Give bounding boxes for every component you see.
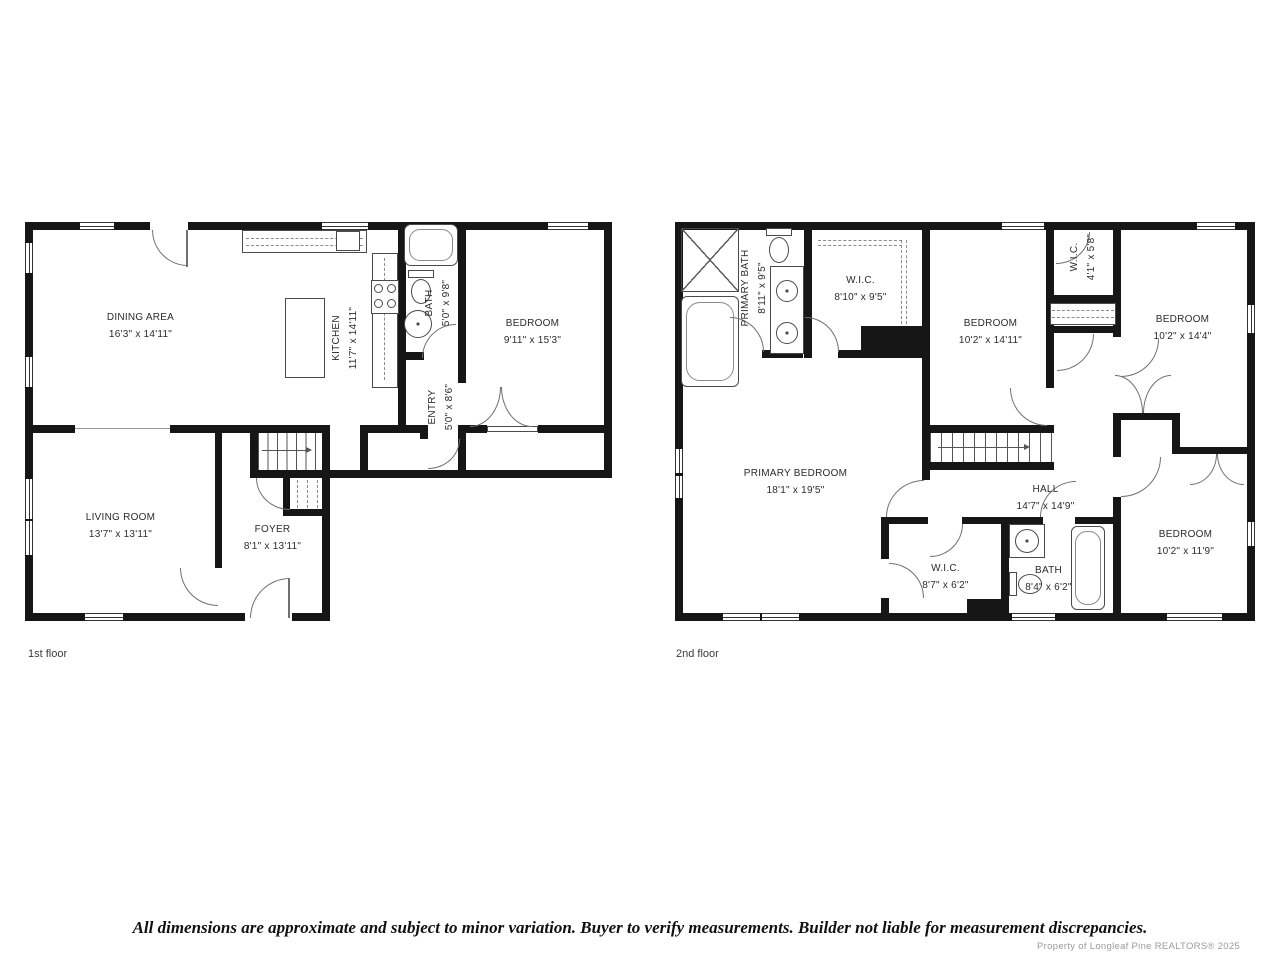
wall bbox=[922, 462, 1054, 470]
room-label-bath-lower: BATH 8'4" x 6'2" bbox=[986, 563, 1111, 596]
wall bbox=[1113, 413, 1180, 420]
sink bbox=[1015, 529, 1039, 553]
wall bbox=[675, 222, 1255, 230]
burner bbox=[387, 284, 396, 293]
wall bbox=[922, 425, 1054, 433]
door-swing bbox=[930, 524, 963, 557]
room-label-hall: HALL 14'7" x 14'9" bbox=[983, 482, 1108, 515]
door-swing bbox=[256, 478, 290, 510]
window bbox=[25, 521, 33, 555]
floor-caption-1: 1st floor bbox=[28, 648, 67, 660]
room-label-bedroom: BEDROOM 9'11" x 15'3" bbox=[460, 316, 605, 349]
room-label-bath: BATH 5'0" x 9'8" bbox=[422, 261, 452, 345]
kitchen-island bbox=[285, 298, 325, 378]
window bbox=[762, 613, 799, 621]
sink bbox=[776, 322, 798, 344]
door-swing bbox=[501, 387, 532, 427]
wall bbox=[922, 358, 930, 480]
wall bbox=[322, 425, 330, 478]
burner bbox=[374, 284, 383, 293]
wall bbox=[25, 222, 33, 621]
shelf-line bbox=[1052, 310, 1114, 311]
closet-door-swing bbox=[1115, 375, 1143, 413]
shower bbox=[681, 228, 739, 292]
wall bbox=[283, 509, 330, 516]
window bbox=[548, 222, 588, 230]
window bbox=[723, 613, 760, 621]
wall bbox=[1247, 222, 1255, 621]
closet-dash bbox=[317, 480, 318, 508]
window bbox=[675, 476, 683, 498]
door-opening bbox=[150, 222, 188, 230]
chase bbox=[861, 326, 922, 352]
room-label-living-room: LIVING ROOM 13'7" x 13'11" bbox=[38, 510, 203, 543]
stairs-arrow-line bbox=[262, 450, 306, 451]
bathtub-inner bbox=[409, 229, 453, 261]
door-leaf bbox=[288, 578, 290, 618]
window bbox=[675, 449, 683, 473]
wall bbox=[881, 598, 889, 613]
closet-dash bbox=[818, 240, 902, 241]
window bbox=[1012, 613, 1055, 621]
stairs-arrow-head bbox=[306, 447, 312, 453]
room-label-kitchen: KITCHEN 11'7" x 14'11" bbox=[329, 283, 363, 393]
wall bbox=[398, 352, 424, 360]
door-swing bbox=[1010, 388, 1047, 426]
closet-dash bbox=[307, 480, 308, 508]
window bbox=[1197, 222, 1235, 230]
disclaimer-text: All dimensions are approximate and subje… bbox=[0, 918, 1280, 938]
room-label-primary-bedroom: PRIMARY BEDROOM 18'1" x 19'5" bbox=[713, 466, 878, 499]
stairs-arrow-line bbox=[938, 447, 1024, 448]
window bbox=[25, 243, 33, 273]
burner bbox=[374, 299, 383, 308]
closet-door-swing bbox=[1190, 454, 1217, 485]
room-label-wic-small: W.I.C. 4'1" x 5'8" bbox=[1067, 215, 1097, 299]
door-swing bbox=[805, 317, 839, 352]
window bbox=[1167, 613, 1222, 621]
wall bbox=[538, 425, 604, 433]
floor-caption-2: 2nd floor bbox=[676, 648, 719, 660]
room-label-entry: ENTRY 5'0" x 8'6" bbox=[425, 365, 455, 449]
closet-dash bbox=[297, 480, 298, 508]
door-swing bbox=[152, 230, 188, 266]
stairs-arrow-head bbox=[1024, 444, 1030, 450]
door-swing bbox=[470, 387, 501, 427]
room-label-primary-bath: PRIMARY BATH 8'11" x 9'5" bbox=[738, 233, 772, 343]
wall bbox=[1172, 447, 1255, 454]
room-label-dining-area: DINING AREA 16'3" x 14'11" bbox=[58, 310, 223, 343]
cabinet-dash bbox=[384, 258, 385, 380]
wall bbox=[1113, 413, 1121, 457]
room-label-bedroom-mid: BEDROOM 10'2" x 14'11" bbox=[918, 316, 1063, 349]
window bbox=[85, 613, 123, 621]
wall bbox=[360, 425, 428, 433]
wall bbox=[250, 470, 612, 478]
closet-dash bbox=[818, 245, 902, 246]
window bbox=[25, 357, 33, 387]
room-label-foyer: FOYER 8'1" x 13'11" bbox=[210, 522, 335, 555]
door-swing bbox=[250, 578, 290, 618]
toilet-bowl bbox=[769, 237, 789, 263]
watermark-text: Property of Longleaf Pine REALTORS® 2025 bbox=[1037, 941, 1240, 952]
burner bbox=[387, 299, 396, 308]
door-swing bbox=[180, 568, 218, 606]
kitchen-sink bbox=[336, 231, 360, 251]
chase bbox=[967, 599, 1009, 613]
wall bbox=[604, 222, 612, 478]
wall bbox=[881, 517, 889, 559]
window bbox=[25, 479, 33, 519]
room-label-bedroom-br: BEDROOM 10'2" x 11'9" bbox=[1113, 527, 1258, 560]
bathtub-inner bbox=[686, 302, 734, 381]
window bbox=[80, 222, 114, 230]
wall bbox=[458, 222, 466, 383]
sink bbox=[776, 280, 798, 302]
wall bbox=[250, 425, 258, 478]
window bbox=[1002, 222, 1044, 230]
door-leaf bbox=[186, 230, 188, 267]
wall bbox=[360, 425, 368, 478]
wall bbox=[458, 425, 466, 478]
stairs bbox=[258, 433, 322, 470]
kitchen-counter bbox=[372, 253, 398, 388]
room-label-bedroom-tr: BEDROOM 10'2" x 14'4" bbox=[1110, 312, 1255, 345]
floor-plan-page: DINING AREA 16'3" x 14'11" KITCHEN 11'7"… bbox=[0, 0, 1280, 960]
wall bbox=[25, 425, 75, 433]
window bbox=[322, 222, 368, 230]
room-label-wic-main: W.I.C. 8'10" x 9'5" bbox=[798, 273, 923, 306]
door-swing bbox=[886, 480, 924, 517]
closet-door-swing bbox=[1143, 375, 1171, 413]
door-swing bbox=[1121, 457, 1161, 497]
closet-door-swing bbox=[1217, 454, 1244, 485]
wall bbox=[1075, 517, 1113, 524]
cased-opening bbox=[75, 428, 170, 429]
